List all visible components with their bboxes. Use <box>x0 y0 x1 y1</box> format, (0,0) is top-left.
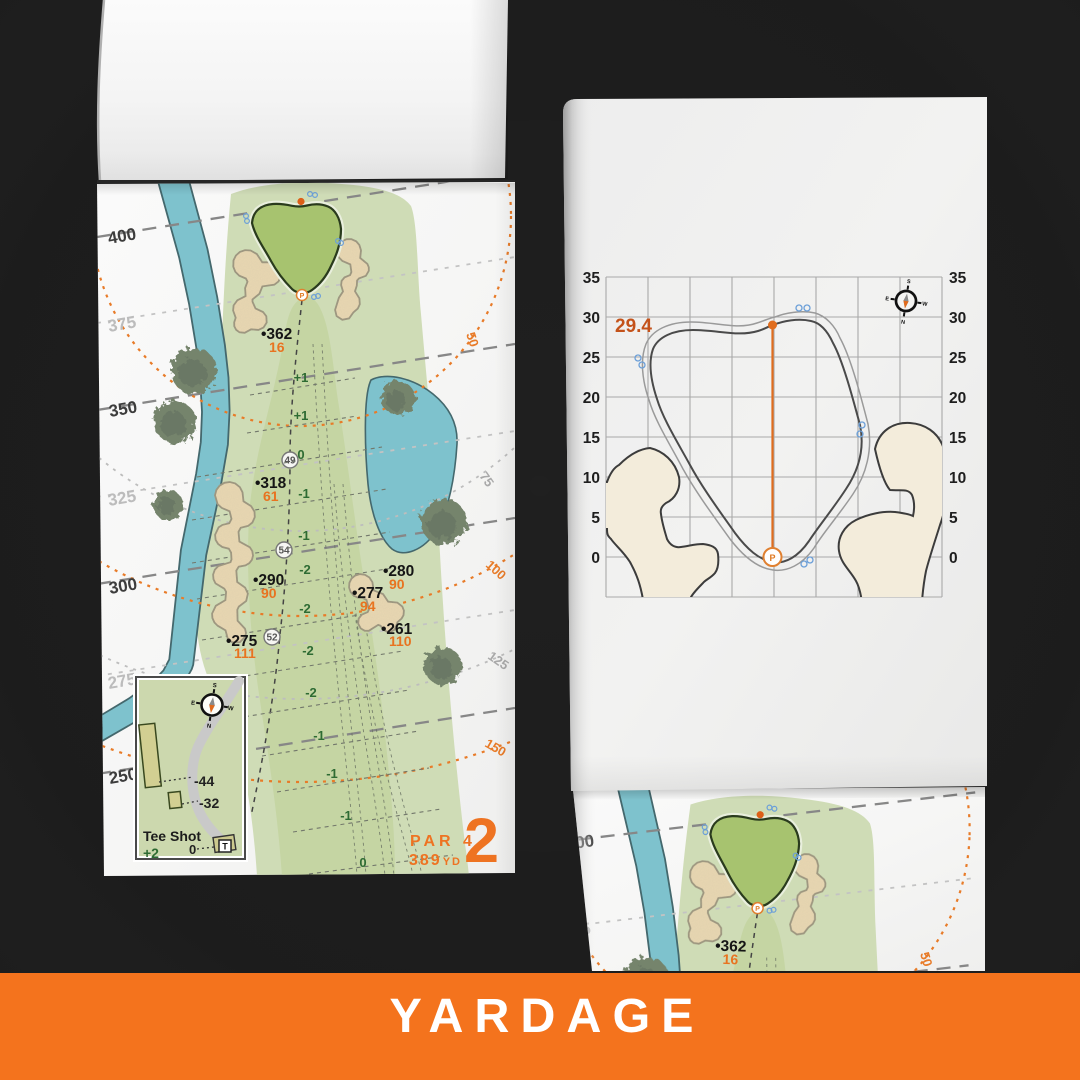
svg-text:29.4: 29.4 <box>615 316 652 337</box>
svg-text:20: 20 <box>583 390 600 407</box>
svg-text:P: P <box>769 553 775 563</box>
svg-text:N: N <box>901 320 906 326</box>
svg-text:30: 30 <box>949 310 966 327</box>
svg-text:35: 35 <box>949 270 967 287</box>
svg-text:0: 0 <box>949 550 958 567</box>
svg-text:10: 10 <box>949 470 966 487</box>
svg-text:15: 15 <box>583 430 601 447</box>
svg-text:25: 25 <box>949 350 967 367</box>
svg-text:30: 30 <box>583 310 600 327</box>
svg-text:25: 25 <box>583 350 601 367</box>
svg-text:0: 0 <box>591 550 600 567</box>
svg-text:35: 35 <box>583 270 601 287</box>
svg-text:YARDAGE: YARDAGE <box>389 989 704 1043</box>
svg-text:5: 5 <box>949 510 958 527</box>
svg-text:5: 5 <box>591 510 600 527</box>
svg-text:15: 15 <box>949 430 967 447</box>
svg-text:20: 20 <box>949 390 966 407</box>
svg-text:10: 10 <box>583 470 600 487</box>
